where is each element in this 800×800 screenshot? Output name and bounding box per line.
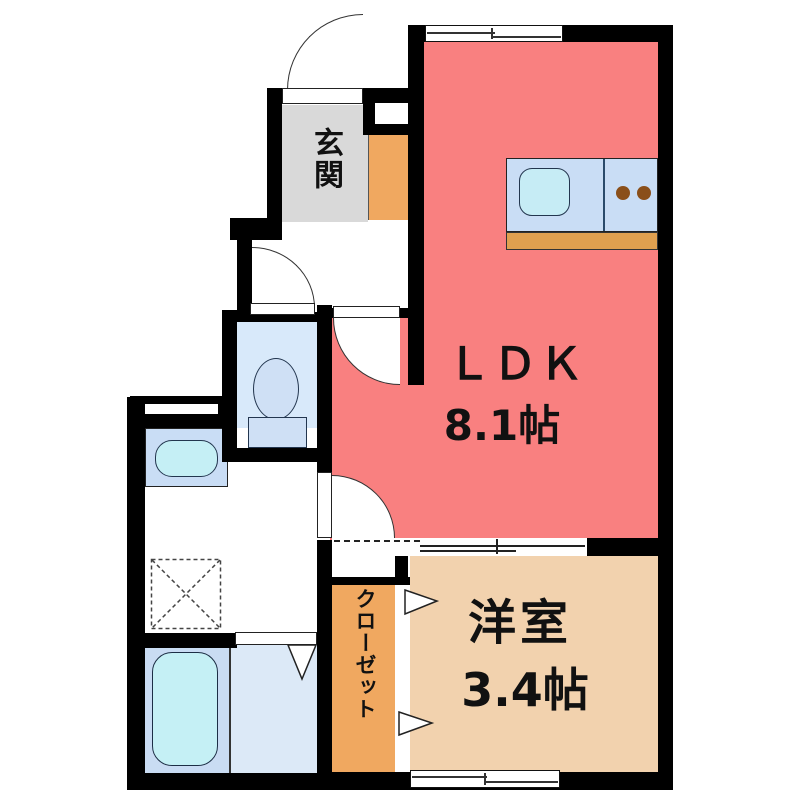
ldk-size-label: 8.1帖 bbox=[402, 404, 602, 448]
partition-tick bbox=[496, 539, 498, 554]
entrance-label: 玄関 bbox=[303, 127, 347, 217]
ldk-label: ＬＤＫ bbox=[416, 342, 616, 388]
floor-plan: ＬＤＫ 8.1帖 洋室 3.4帖 玄関 クローゼット bbox=[0, 0, 800, 800]
wall-toilet-east bbox=[317, 305, 332, 472]
wall-bathroom-north bbox=[127, 633, 237, 648]
wall-toilet-west bbox=[222, 310, 237, 462]
window-south-pane-right bbox=[485, 781, 558, 783]
closet-label: クローゼット bbox=[350, 588, 380, 770]
room-ldk bbox=[422, 40, 658, 540]
wall-toilet-south bbox=[222, 448, 330, 462]
wall-ldk-west bbox=[408, 25, 424, 385]
toilet-tank bbox=[248, 417, 307, 448]
bathroom-folding-door-icon bbox=[286, 643, 320, 683]
wall-closet-north-band bbox=[330, 577, 410, 585]
washroom-window bbox=[145, 404, 218, 414]
entrance-door bbox=[282, 88, 363, 104]
toilet-bowl bbox=[253, 358, 299, 420]
bathtub bbox=[152, 652, 218, 766]
window-north-pane-left bbox=[427, 32, 495, 34]
partition-pane-lower bbox=[420, 550, 516, 552]
wall-entrance-west bbox=[267, 88, 282, 222]
washbasin-bowl bbox=[155, 440, 218, 477]
ldk-door bbox=[333, 306, 400, 318]
window-south-pane-left bbox=[412, 776, 487, 778]
entrance-step-strip bbox=[368, 135, 410, 220]
window-north bbox=[425, 25, 563, 42]
wall-south-west bbox=[127, 773, 330, 790]
kitchen-counter-divider bbox=[603, 159, 605, 231]
wall-partition-east bbox=[587, 538, 658, 556]
washroom-door bbox=[317, 472, 332, 538]
wall-closet-corner-stub bbox=[395, 555, 408, 577]
partition-dashed-opening bbox=[334, 540, 420, 542]
window-north-pane-right bbox=[492, 36, 561, 38]
stove-burner-right-icon bbox=[637, 186, 651, 200]
bathroom-divider bbox=[229, 645, 231, 773]
window-south-tick bbox=[484, 773, 486, 785]
washing-machine-pan-icon bbox=[150, 558, 222, 630]
toilet-door bbox=[250, 303, 315, 315]
entrance-door-arc bbox=[287, 14, 363, 90]
stove-burner-left-icon bbox=[616, 186, 630, 200]
window-north-tick bbox=[491, 28, 493, 39]
entrance-wall-niche bbox=[375, 103, 410, 124]
western-room-size-label: 3.4帖 bbox=[420, 666, 630, 714]
partition-pane-upper bbox=[420, 545, 585, 547]
kitchen-sink bbox=[519, 168, 570, 216]
wall-west-lower bbox=[127, 397, 145, 790]
western-room-label: 洋室 bbox=[425, 598, 615, 648]
kitchen-counter-base bbox=[506, 232, 658, 250]
wall-east bbox=[658, 25, 673, 790]
